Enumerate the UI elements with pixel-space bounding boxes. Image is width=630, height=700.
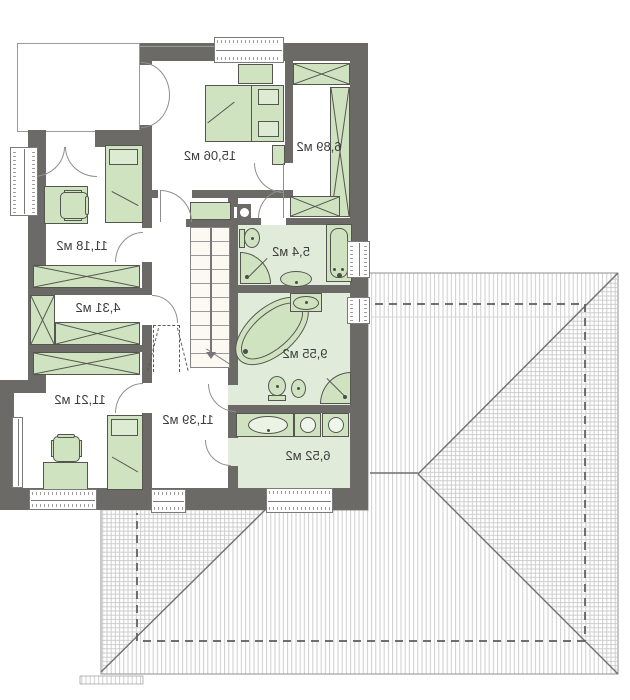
corridor-cabinet — [190, 202, 231, 220]
staircase — [190, 227, 230, 368]
bidet — [291, 379, 306, 398]
window-top — [214, 37, 284, 63]
office-chair — [53, 436, 80, 462]
blanket-fold — [207, 102, 234, 124]
toilet-bowl — [244, 228, 260, 248]
tap-dot — [341, 268, 344, 271]
wall-bath-spine — [228, 466, 238, 488]
basin-slot — [234, 207, 237, 218]
toilet-dot — [276, 385, 279, 388]
wall-stair-top — [186, 219, 233, 227]
wardrobe-cabinet — [293, 63, 350, 85]
basin-dot — [295, 281, 298, 284]
pillow — [258, 89, 279, 105]
pillow — [258, 121, 279, 137]
window-bottom-laundry — [266, 488, 333, 513]
pillow — [111, 419, 138, 436]
wardrobe-cabinet — [33, 265, 140, 288]
window-bottom-hall — [151, 489, 186, 513]
washbasin — [280, 271, 312, 287]
wardrobe-cabinet — [290, 196, 340, 217]
roof-gutter-band — [80, 676, 143, 684]
basin-dot — [305, 301, 308, 304]
blanket-fold — [112, 457, 138, 473]
wall-room-divider — [28, 345, 152, 352]
bidet-dot — [297, 387, 300, 390]
toilet-dot — [251, 237, 254, 240]
window-west-lower — [12, 417, 23, 488]
toilet-bowl — [268, 376, 286, 396]
wardrobe-cabinet — [33, 352, 140, 375]
corridor-basin-unit — [231, 204, 251, 222]
room-label-bathroom-small: 5,4 м2 — [262, 244, 320, 260]
washing-machine — [322, 413, 349, 437]
chair-armrest — [64, 190, 82, 193]
single-bed — [107, 415, 143, 490]
nightstand — [238, 64, 273, 84]
drain-dot — [337, 273, 342, 278]
window-bottom-left — [29, 489, 97, 510]
window-east-lower — [347, 297, 370, 324]
bed-line — [251, 86, 252, 141]
room-label-bedroom: 15,06 м2 — [170, 148, 250, 164]
desk — [43, 462, 88, 490]
pillow — [109, 149, 138, 165]
sink-dot — [267, 429, 270, 432]
room-label-bathroom-large: 9,55 м2 — [272, 346, 338, 362]
room-label-hall: 11,39 м2 — [147, 412, 229, 428]
tub-tap-dot — [243, 349, 248, 354]
window-east-upper — [347, 241, 370, 278]
room-label-laundry: 6,52 м2 — [274, 448, 342, 464]
washing-machine — [294, 413, 321, 437]
stair-center-line — [210, 228, 212, 355]
tap-dot — [333, 268, 336, 271]
chair-armrest — [64, 218, 82, 221]
wardrobe-cabinet — [55, 322, 140, 345]
office-chair — [60, 192, 88, 219]
chair-back — [57, 434, 75, 438]
shower-head-dot — [343, 395, 347, 399]
chair-armrest — [79, 440, 82, 457]
chair-armrest — [51, 440, 54, 457]
wall-bedroom-bottom — [152, 190, 158, 198]
room-label-closet: 4,31 м2 — [62, 300, 134, 316]
floor-plan-canvas: 15,06 м2 6,89 м2 11,18 м2 4,31 м2 11,21 … — [0, 0, 630, 700]
room-label-child-room-1: 11,18 м2 — [42, 238, 122, 254]
wall-laundry-divider — [228, 405, 350, 413]
laundry-sink — [248, 416, 288, 434]
facade-line — [140, 46, 216, 47]
single-bed — [105, 145, 143, 223]
shower-diagonal — [326, 378, 345, 397]
double-bed — [205, 85, 284, 142]
basin-bowl — [240, 208, 249, 217]
toilet-tank — [268, 395, 286, 401]
washer-drum — [300, 417, 316, 433]
nightstand — [272, 145, 285, 165]
shower-head-dot — [245, 275, 249, 279]
balcony — [17, 43, 140, 132]
washer-drum — [328, 417, 344, 433]
room-label-child-room-2: 11,21 м2 — [40, 392, 120, 408]
wall-balcony-bottom — [28, 130, 36, 147]
chair-back — [85, 196, 89, 215]
shower-diagonal — [248, 258, 267, 277]
wardrobe-cabinet — [30, 295, 55, 345]
window-west — [10, 147, 38, 216]
washbasin — [293, 296, 319, 310]
blanket-fold — [112, 191, 139, 206]
room-label-wardrobe: 6,89 м2 — [288, 139, 350, 155]
wall-spine — [142, 147, 152, 228]
wall-room-divider — [28, 288, 152, 295]
